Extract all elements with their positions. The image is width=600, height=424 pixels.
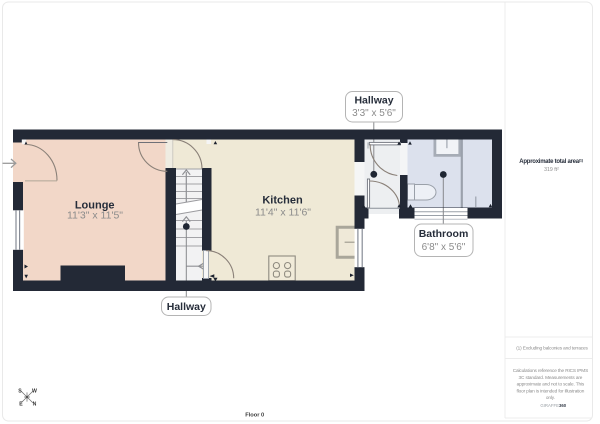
svg-text:11'3" x 11'5": 11'3" x 11'5" [67, 210, 123, 222]
svg-text:(1) Excluding balconies and te: (1) Excluding balconies and terraces [516, 346, 588, 351]
svg-text:11'4" x 11'6": 11'4" x 11'6" [255, 207, 311, 219]
svg-text:only.: only. [546, 395, 555, 400]
svg-text:W: W [32, 388, 37, 394]
svg-text:floor plan is intended for ill: floor plan is intended for illustration [517, 388, 585, 393]
svg-text:Approximate total area(1): Approximate total area(1) [519, 158, 583, 165]
svg-text:3C standard. Measurements are: 3C standard. Measurements are [519, 375, 583, 380]
svg-text:Hallway: Hallway [167, 301, 206, 313]
svg-text:N: N [33, 402, 37, 408]
svg-text:Hallway: Hallway [354, 95, 393, 107]
svg-text:Floor 0: Floor 0 [245, 412, 264, 418]
svg-text:S: S [18, 388, 22, 394]
svg-text:319 ft²: 319 ft² [544, 167, 559, 173]
svg-text:E: E [19, 402, 23, 408]
svg-text:Bathroom: Bathroom [419, 228, 469, 240]
svg-text:3'3" x 5'6": 3'3" x 5'6" [352, 108, 396, 119]
svg-text:Calculations reference the RIC: Calculations reference the RICS IPMS [513, 368, 588, 373]
svg-text:Kitchen: Kitchen [262, 195, 303, 207]
svg-text:6'8" x 5'6": 6'8" x 5'6" [422, 242, 466, 253]
svg-text:approximate and not to scale.: approximate and not to scale. This [517, 382, 585, 387]
svg-text:GIRAFFE360: GIRAFFE360 [540, 403, 566, 408]
